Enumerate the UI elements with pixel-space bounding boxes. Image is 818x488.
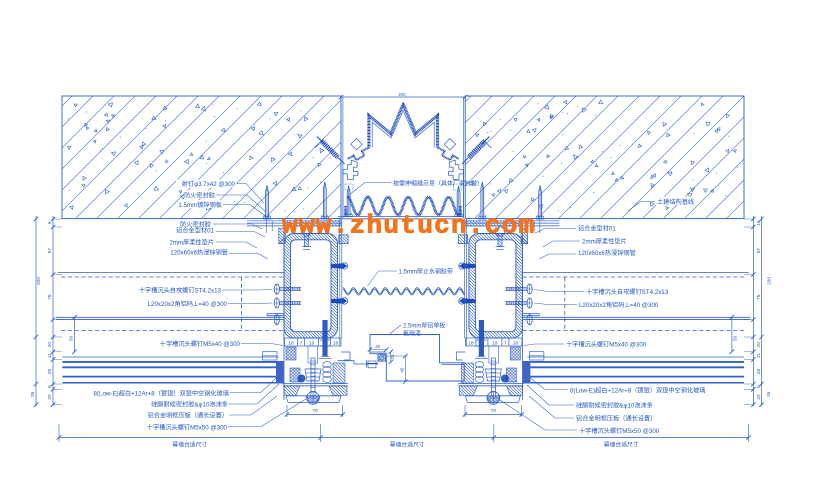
svg-text:57: 57 xyxy=(756,248,762,254)
svg-text:幕墙台适尺寸: 幕墙台适尺寸 xyxy=(604,441,639,449)
svg-text:十字槽沉头螺钉M5x40 @300: 十字槽沉头螺钉M5x40 @300 xyxy=(566,341,647,349)
svg-text:氟碳漆: 氟碳漆 xyxy=(403,330,421,338)
svg-text:28: 28 xyxy=(756,369,762,375)
svg-text:120x60x6热浸锌钢管: 120x60x6热浸锌钢管 xyxy=(578,249,636,257)
svg-text:硅酮耐候密封胶&φ10泡沫条: 硅酮耐候密封胶&φ10泡沫条 xyxy=(151,401,228,409)
svg-text:11: 11 xyxy=(756,353,762,358)
svg-text:70: 70 xyxy=(312,408,318,414)
svg-text:8(Low-E)超白+12Ar+8（镀银）双银中空钢化玻璃: 8(Low-E)超白+12Ar+8（镀银）双银中空钢化玻璃 xyxy=(570,387,705,395)
svg-text:十字槽沉头螺钉M5x50 @300: 十字槽沉头螺钉M5x50 @300 xyxy=(579,427,660,435)
svg-text:19: 19 xyxy=(309,340,315,346)
svg-text:铝合金型材01: 铝合金型材01 xyxy=(176,227,214,235)
svg-text:十字槽沉头自攻螺钉ST4.2x13: 十字槽沉头自攻螺钉ST4.2x13 xyxy=(586,288,669,296)
svg-text:20: 20 xyxy=(47,394,53,400)
svg-text:9: 9 xyxy=(47,221,53,224)
svg-text:28: 28 xyxy=(47,369,53,375)
svg-text:防火密封胶: 防火密封胶 xyxy=(184,192,215,200)
svg-text:18: 18 xyxy=(288,340,294,346)
svg-text:50: 50 xyxy=(732,335,737,341)
svg-text:26: 26 xyxy=(30,391,36,397)
svg-text:十字槽沉头自攻螺钉ST4.2x13: 十字槽沉头自攻螺钉ST4.2x13 xyxy=(139,287,222,295)
svg-text:19: 19 xyxy=(492,340,498,346)
svg-text:18: 18 xyxy=(333,340,339,346)
svg-text:8(Low-E)超白+12Ar+8（镀银）双银中空钢化玻璃: 8(Low-E)超白+12Ar+8（镀银）双银中空钢化玻璃 xyxy=(94,390,229,398)
svg-text:120x60x6热浸锌钢管: 120x60x6热浸锌钢管 xyxy=(170,249,228,257)
svg-text:1.5mm镀锌钢板: 1.5mm镀锌钢板 xyxy=(178,201,222,209)
svg-text:www.zhutucn.com: www.zhutucn.com xyxy=(282,211,536,241)
svg-text:19: 19 xyxy=(756,220,762,226)
svg-text:2mm厚柔性垫片: 2mm厚柔性垫片 xyxy=(169,239,214,247)
svg-text:L20x20x2角铝码,L=40 @300: L20x20x2角铝码,L=40 @300 xyxy=(579,301,659,309)
svg-text:幕墙台适尺寸: 幕墙台适尺寸 xyxy=(390,441,425,449)
svg-text:75: 75 xyxy=(47,294,53,300)
svg-text:1.5mm厚止水钢胶带: 1.5mm厚止水钢胶带 xyxy=(399,268,453,276)
svg-text:18: 18 xyxy=(468,340,474,346)
svg-text:11: 11 xyxy=(47,353,53,358)
svg-text:6: 6 xyxy=(47,385,53,388)
svg-text:2mm厚柔性垫片: 2mm厚柔性垫片 xyxy=(582,238,627,246)
svg-text:2.5mm厚铝单板: 2.5mm厚铝单板 xyxy=(403,322,445,330)
svg-text:20: 20 xyxy=(47,342,53,348)
svg-text:75: 75 xyxy=(756,294,762,300)
svg-text:57: 57 xyxy=(47,248,53,254)
svg-text:铝合金明框压板（通长设置）: 铝合金明框压板（通长设置） xyxy=(576,415,656,423)
svg-text:十字槽沉头螺钉M5x40 @300: 十字槽沉头螺钉M5x40 @300 xyxy=(160,340,241,348)
svg-text:25: 25 xyxy=(390,354,395,359)
svg-text:铝合金明框压板（通长设置）: 铝合金明框压板（通长设置） xyxy=(148,412,228,420)
svg-text:20: 20 xyxy=(756,342,762,348)
svg-text:铝合金型材01: 铝合金型材01 xyxy=(578,225,616,233)
svg-text:50: 50 xyxy=(69,335,74,341)
svg-text:7: 7 xyxy=(300,340,303,346)
svg-text:200: 200 xyxy=(398,92,406,97)
svg-text:按需伸缩缝示意（具体厂家包做）: 按需伸缩缝示意（具体厂家包做） xyxy=(393,180,483,188)
svg-text:L20x20x2角铝码,L=40 @300: L20x20x2角铝码,L=40 @300 xyxy=(148,300,228,308)
svg-text:200: 200 xyxy=(36,277,42,285)
svg-text:十字槽沉头螺钉M5x50 @300: 十字槽沉头螺钉M5x50 @300 xyxy=(147,424,228,432)
svg-text:7: 7 xyxy=(504,340,507,346)
svg-text:6: 6 xyxy=(756,385,762,388)
svg-text:幕墙台适尺寸: 幕墙台适尺寸 xyxy=(172,441,207,449)
svg-text:硅酮耐候密封胶&φ10泡沫条: 硅酮耐候密封胶&φ10泡沫条 xyxy=(576,402,653,410)
svg-text:45: 45 xyxy=(399,367,404,372)
svg-text:20: 20 xyxy=(375,344,380,349)
svg-text:土建结构基线: 土建结构基线 xyxy=(657,198,694,206)
svg-text:18: 18 xyxy=(513,340,519,346)
svg-text:射钉φ3.7x42 @300: 射钉φ3.7x42 @300 xyxy=(182,180,236,188)
svg-text:20: 20 xyxy=(756,394,762,400)
svg-text:70: 70 xyxy=(491,408,497,414)
svg-text:26: 26 xyxy=(766,391,772,397)
svg-text:200: 200 xyxy=(767,277,773,285)
